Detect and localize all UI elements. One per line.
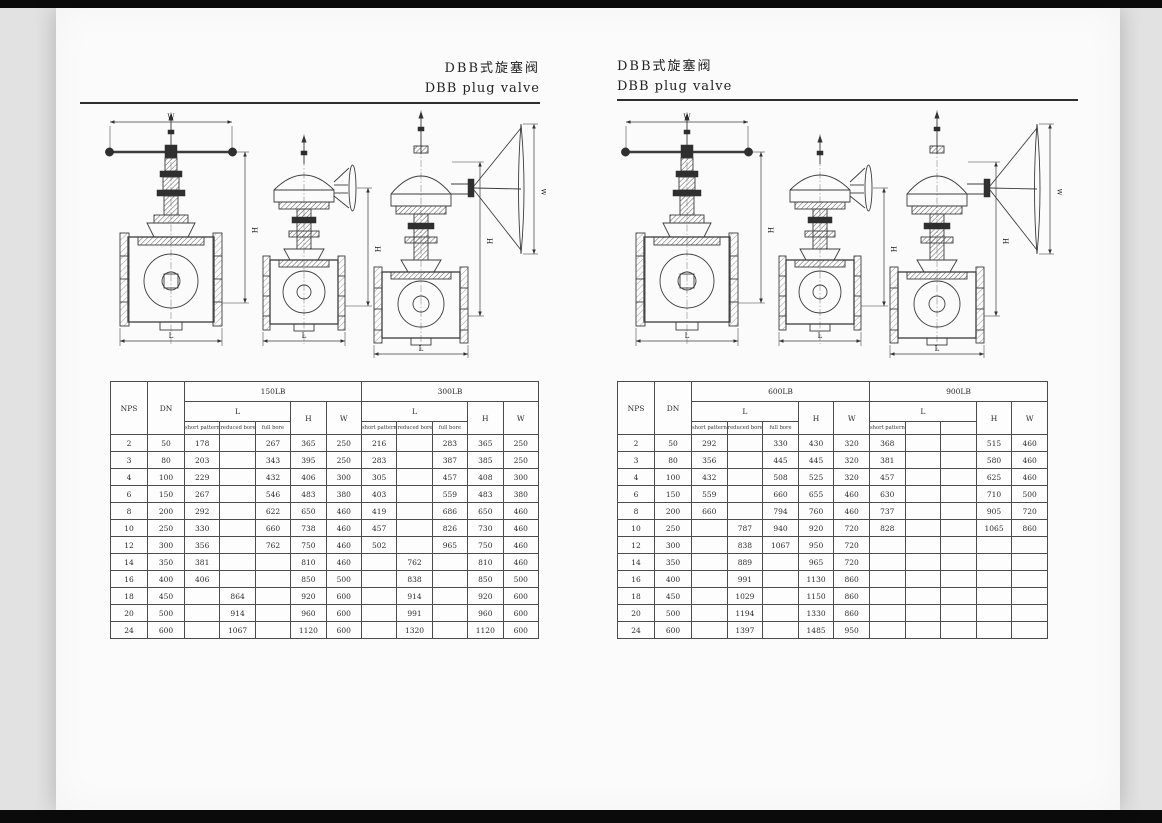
table-row: 2050011941330860	[618, 605, 1048, 622]
table-cell	[905, 469, 941, 486]
table-cell	[692, 537, 728, 554]
table-row: 123008381067950720	[618, 537, 1048, 554]
table-cell	[361, 571, 396, 588]
table-cell: 2	[618, 435, 655, 452]
table-cell: 730	[468, 520, 503, 537]
table-row: 1845010291150860	[618, 588, 1048, 605]
table-cell	[905, 435, 941, 452]
table-cell: 16	[618, 571, 655, 588]
table-cell	[905, 622, 941, 639]
table-cell: 710	[976, 486, 1012, 503]
table-row: 14350889965720	[618, 554, 1048, 571]
table-cell	[905, 422, 941, 435]
table-cell	[941, 435, 977, 452]
table-cell	[976, 605, 1012, 622]
table-row: 8200292622650460419686650460	[111, 503, 539, 520]
table-cell: 828	[869, 520, 905, 537]
table-cell	[1012, 554, 1048, 571]
table-cell	[185, 588, 220, 605]
table-cell: 380	[503, 486, 538, 503]
table-cell: 10	[111, 520, 148, 537]
right-page-title: DBB式旋塞阀 DBB plug valve	[617, 58, 917, 95]
table-row: 2460013971485950	[618, 622, 1048, 639]
table-cell: 960	[291, 605, 326, 622]
table-cell	[255, 554, 290, 571]
table-cell	[905, 554, 941, 571]
table-cell: 320	[834, 469, 870, 486]
table-cell: 794	[763, 503, 799, 520]
table-cell: 622	[255, 503, 290, 520]
table-cell: 2	[111, 435, 148, 452]
table-cell: 600	[503, 588, 538, 605]
right-title-rule	[617, 99, 1078, 101]
table-cell: H	[291, 402, 326, 435]
table-cell	[869, 554, 905, 571]
table-row: 8200660794760460737905720	[618, 503, 1048, 520]
table-cell	[727, 486, 763, 503]
table-row: 18450864920600914920600	[111, 588, 539, 605]
table-cell: 457	[361, 520, 396, 537]
table-cell	[692, 520, 728, 537]
table-cell	[361, 554, 396, 571]
table-cell	[220, 486, 255, 503]
table-cell: 1067	[220, 622, 255, 639]
table-cell: 250	[148, 520, 185, 537]
table-cell: 660	[692, 503, 728, 520]
scanned-catalog-page: { "pages": { "left": {"title_cn": "DBB式旋…	[0, 0, 1162, 823]
table-cell: 10	[618, 520, 655, 537]
table-cell: 508	[763, 469, 799, 486]
table-cell: 229	[185, 469, 220, 486]
table-cell	[941, 422, 977, 435]
table-cell: 350	[655, 554, 692, 571]
table-cell: 950	[834, 622, 870, 639]
table-cell: 400	[655, 571, 692, 588]
table-cell	[976, 537, 1012, 554]
table-cell: 356	[185, 537, 220, 554]
table-cell: DN	[655, 382, 692, 435]
table-cell: 381	[869, 452, 905, 469]
table-cell: 445	[798, 452, 834, 469]
table-cell	[763, 554, 799, 571]
table-cell	[941, 520, 977, 537]
table-cell: 950	[798, 537, 834, 554]
table-cell	[432, 571, 467, 588]
table-row: 4100432508525320457625460	[618, 469, 1048, 486]
table-row: 6150267546483380403559483380	[111, 486, 539, 503]
table-cell: 450	[655, 588, 692, 605]
table-cell: 150	[655, 486, 692, 503]
table-cell	[869, 571, 905, 588]
table-cell	[220, 537, 255, 554]
table-cell: 178	[185, 435, 220, 452]
table-cell: 600	[655, 622, 692, 639]
table-cell	[1012, 588, 1048, 605]
table-cell	[869, 622, 905, 639]
table-cell: 1067	[763, 537, 799, 554]
table-cell: 905	[976, 503, 1012, 520]
table-cell: 1120	[468, 622, 503, 639]
table-cell: 580	[976, 452, 1012, 469]
table-cell	[1012, 605, 1048, 622]
table-cell: reduced bore	[220, 422, 255, 435]
table-cell	[941, 452, 977, 469]
table-cell: 965	[432, 537, 467, 554]
table-cell	[361, 605, 396, 622]
table-cell	[220, 571, 255, 588]
table-cell: 380	[326, 486, 361, 503]
table-cell	[397, 486, 432, 503]
table-cell	[185, 605, 220, 622]
table-cell	[397, 435, 432, 452]
table-cell: 600	[503, 605, 538, 622]
table-cell: 460	[326, 520, 361, 537]
table-cell: 500	[326, 571, 361, 588]
table-cell: 283	[361, 452, 396, 469]
table-cell	[976, 554, 1012, 571]
table-cell: 408	[468, 469, 503, 486]
table-cell: 4	[111, 469, 148, 486]
table-cell: 460	[503, 520, 538, 537]
table-cell: 920	[291, 588, 326, 605]
table-cell: 368	[869, 435, 905, 452]
table-cell: 330	[185, 520, 220, 537]
table-cell: 738	[291, 520, 326, 537]
table-cell: 1065	[976, 520, 1012, 537]
table-cell: 250	[326, 435, 361, 452]
table-cell: 12	[111, 537, 148, 554]
table-cell	[727, 452, 763, 469]
table-cell	[432, 588, 467, 605]
table-cell: 460	[326, 537, 361, 554]
table-cell: 460	[834, 486, 870, 503]
table-cell: 600	[503, 622, 538, 639]
table-cell: 940	[763, 520, 799, 537]
table-cell: 365	[468, 435, 503, 452]
table-cell: 750	[468, 537, 503, 554]
table-cell	[941, 588, 977, 605]
table-cell: 250	[326, 452, 361, 469]
table-cell	[255, 571, 290, 588]
valve-drawings-right-page	[592, 106, 1062, 368]
table-cell: 460	[1012, 452, 1048, 469]
table-cell: 483	[291, 486, 326, 503]
table-cell: W	[834, 402, 870, 435]
table-cell: 350	[148, 554, 185, 571]
table-cell: 460	[326, 503, 361, 520]
table-cell: 1120	[291, 622, 326, 639]
table-cell: 655	[798, 486, 834, 503]
table-cell	[220, 554, 255, 571]
table-cell: 460	[503, 537, 538, 554]
table-cell: H	[976, 402, 1012, 435]
table-cell	[905, 605, 941, 622]
table-cell: 14	[111, 554, 148, 571]
table-cell: 460	[1012, 469, 1048, 486]
table-cell: 300	[148, 537, 185, 554]
table-cell: 356	[692, 452, 728, 469]
table-cell	[905, 588, 941, 605]
table-cell	[976, 622, 1012, 639]
table-cell: 203	[185, 452, 220, 469]
table-cell: DN	[148, 382, 185, 435]
table-cell: 810	[291, 554, 326, 571]
table-cell	[941, 486, 977, 503]
table-cell: 283	[432, 435, 467, 452]
table-cell: 600	[326, 605, 361, 622]
table-cell: 50	[655, 435, 692, 452]
table-cell: 502	[361, 537, 396, 554]
table-cell	[1012, 571, 1048, 588]
table-cell: 860	[834, 605, 870, 622]
table-cell: 460	[503, 554, 538, 571]
table-row: 102507879409207208281065860	[618, 520, 1048, 537]
table-cell: 100	[148, 469, 185, 486]
table-cell: 460	[834, 503, 870, 520]
table-cell: 860	[834, 571, 870, 588]
table-cell: 387	[432, 452, 467, 469]
table-cell: 80	[655, 452, 692, 469]
table-cell: NPS	[111, 382, 148, 435]
table-cell: 292	[692, 435, 728, 452]
table-cell: 1130	[798, 571, 834, 588]
table-cell: 406	[291, 469, 326, 486]
table-cell: reduced bore	[727, 422, 763, 435]
table-cell	[905, 537, 941, 554]
table-cell: 889	[727, 554, 763, 571]
table-cell: 850	[291, 571, 326, 588]
page-title-chinese: DBB式旋塞阀	[617, 58, 917, 75]
table-cell	[397, 469, 432, 486]
table-cell: 365	[291, 435, 326, 452]
table-cell	[692, 605, 728, 622]
table-cell: 150	[148, 486, 185, 503]
table-cell: 267	[255, 435, 290, 452]
table-row: 380203343395250283387385250	[111, 452, 539, 469]
table-cell: H	[798, 402, 834, 435]
table-cell: 305	[361, 469, 396, 486]
table-cell	[692, 588, 728, 605]
table-cell	[692, 554, 728, 571]
table-cell	[255, 588, 290, 605]
table-cell: 1029	[727, 588, 763, 605]
table-row: 16400406850500838850500	[111, 571, 539, 588]
table-cell	[763, 571, 799, 588]
table-cell: 1150	[798, 588, 834, 605]
table-cell: 860	[1012, 520, 1048, 537]
table-cell: 650	[291, 503, 326, 520]
table-cell: H	[468, 402, 503, 435]
table-cell: 864	[220, 588, 255, 605]
table-cell: 787	[727, 520, 763, 537]
table-cell	[432, 622, 467, 639]
table-cell: W	[503, 402, 538, 435]
table-cell: 320	[834, 435, 870, 452]
table-cell: 20	[111, 605, 148, 622]
table-cell: 432	[255, 469, 290, 486]
table-cell: 914	[220, 605, 255, 622]
table-cell: L	[185, 402, 291, 422]
table-cell	[763, 605, 799, 622]
table-cell: 760	[798, 503, 834, 520]
dimension-table-600lb-900lb: NPSDN600LB900LBLHWLHWshort patternreduce…	[617, 381, 1048, 636]
table-row: 250178267365250216283365250	[111, 435, 539, 452]
table-cell: 343	[255, 452, 290, 469]
table-cell: W	[326, 402, 361, 435]
table-cell: 720	[834, 520, 870, 537]
table-cell: 900LB	[869, 382, 1047, 402]
table-cell	[976, 571, 1012, 588]
table-cell	[941, 537, 977, 554]
table-cell: 18	[618, 588, 655, 605]
table-cell: full bore	[763, 422, 799, 435]
table-cell: 686	[432, 503, 467, 520]
table-cell: 292	[185, 503, 220, 520]
table-cell	[397, 503, 432, 520]
dimension-table-150lb-300lb: NPSDN150LB300LBLHWLHWshort patternreduce…	[110, 381, 539, 636]
table-cell: 3	[111, 452, 148, 469]
table-cell: 525	[798, 469, 834, 486]
table-cell: L	[361, 402, 467, 422]
table-row: 4100229432406300305457408300	[111, 469, 539, 486]
table-row: 10250330660738460457826730460	[111, 520, 539, 537]
table-cell	[692, 622, 728, 639]
table-cell: 200	[148, 503, 185, 520]
table-cell	[361, 622, 396, 639]
table-cell: short pattern	[361, 422, 396, 435]
table-cell: 24	[111, 622, 148, 639]
table-cell	[905, 571, 941, 588]
table-cell: 810	[468, 554, 503, 571]
table-cell: 600	[326, 622, 361, 639]
table-row: 250292330430320368515460	[618, 435, 1048, 452]
table-cell	[255, 622, 290, 639]
table-cell	[397, 537, 432, 554]
table-cell	[220, 469, 255, 486]
table-cell: short pattern	[185, 422, 220, 435]
table-cell: 460	[503, 503, 538, 520]
table-cell: 300LB	[361, 382, 538, 402]
table-cell: 216	[361, 435, 396, 452]
table-cell: 625	[976, 469, 1012, 486]
table-cell	[727, 503, 763, 520]
table-cell: reduced bore	[397, 422, 432, 435]
photo-top-border	[0, 0, 1162, 8]
table-cell: 450	[148, 588, 185, 605]
page-title-chinese: DBB式旋塞阀	[240, 60, 540, 77]
table-cell: 24	[618, 622, 655, 639]
table-cell: 483	[468, 486, 503, 503]
table-cell: 385	[468, 452, 503, 469]
table-cell: 960	[468, 605, 503, 622]
table-cell: 600	[326, 588, 361, 605]
table-cell: 515	[976, 435, 1012, 452]
table-cell: 991	[397, 605, 432, 622]
table-cell	[941, 605, 977, 622]
table-cell: 720	[834, 537, 870, 554]
table-cell: 838	[727, 537, 763, 554]
table-cell	[763, 622, 799, 639]
table-cell: 432	[692, 469, 728, 486]
table-cell: 600	[148, 622, 185, 639]
table-row: 164009911130860	[618, 571, 1048, 588]
table-cell: 20	[618, 605, 655, 622]
table-cell: 500	[1012, 486, 1048, 503]
table-cell	[869, 605, 905, 622]
table-cell: 860	[834, 588, 870, 605]
table-cell: 600LB	[692, 382, 870, 402]
table-cell: 762	[397, 554, 432, 571]
table-cell: L	[869, 402, 976, 422]
table-cell: 660	[763, 486, 799, 503]
table-cell: 300	[326, 469, 361, 486]
table-cell: 457	[432, 469, 467, 486]
table-cell: 16	[111, 571, 148, 588]
table-cell: 500	[503, 571, 538, 588]
table-cell: full bore	[255, 422, 290, 435]
table-cell	[727, 469, 763, 486]
table-cell: 330	[763, 435, 799, 452]
table-cell	[397, 520, 432, 537]
table-cell	[941, 503, 977, 520]
table-cell	[692, 571, 728, 588]
table-cell	[361, 588, 396, 605]
table-cell	[941, 469, 977, 486]
table-cell: 546	[255, 486, 290, 503]
table-cell: 12	[618, 537, 655, 554]
table-cell: 991	[727, 571, 763, 588]
table-row: 12300356762750460502965750460	[111, 537, 539, 554]
table-cell: 430	[798, 435, 834, 452]
table-cell: short pattern	[692, 422, 728, 435]
table-cell: 720	[834, 554, 870, 571]
table-cell	[869, 588, 905, 605]
table-cell: 445	[763, 452, 799, 469]
table-cell: 500	[148, 605, 185, 622]
table-cell	[432, 554, 467, 571]
table-cell	[727, 435, 763, 452]
table-cell	[1012, 537, 1048, 554]
table-cell: 403	[361, 486, 396, 503]
page-title-english: DBB plug valve	[617, 78, 917, 95]
table-cell: 965	[798, 554, 834, 571]
table-cell	[941, 622, 977, 639]
table-cell: 457	[869, 469, 905, 486]
table-cell: 300	[655, 537, 692, 554]
table-cell: 1320	[397, 622, 432, 639]
table-cell: 300	[503, 469, 538, 486]
table-row: 380356445445320381580460	[618, 452, 1048, 469]
left-page-title: DBB式旋塞阀 DBB plug valve	[240, 60, 540, 97]
table-cell	[905, 452, 941, 469]
table-cell: 8	[111, 503, 148, 520]
table-cell: 267	[185, 486, 220, 503]
table-cell	[432, 605, 467, 622]
table-cell	[220, 503, 255, 520]
table-cell	[976, 588, 1012, 605]
table-cell: 3	[618, 452, 655, 469]
table-cell: L	[692, 402, 799, 422]
table-cell: full bore	[432, 422, 467, 435]
table-cell: 80	[148, 452, 185, 469]
table-cell: 559	[692, 486, 728, 503]
table-cell	[905, 503, 941, 520]
table-cell: 920	[468, 588, 503, 605]
table-cell: 920	[798, 520, 834, 537]
table-row: 20500914960600991960600	[111, 605, 539, 622]
table-cell	[397, 452, 432, 469]
table-cell	[941, 554, 977, 571]
